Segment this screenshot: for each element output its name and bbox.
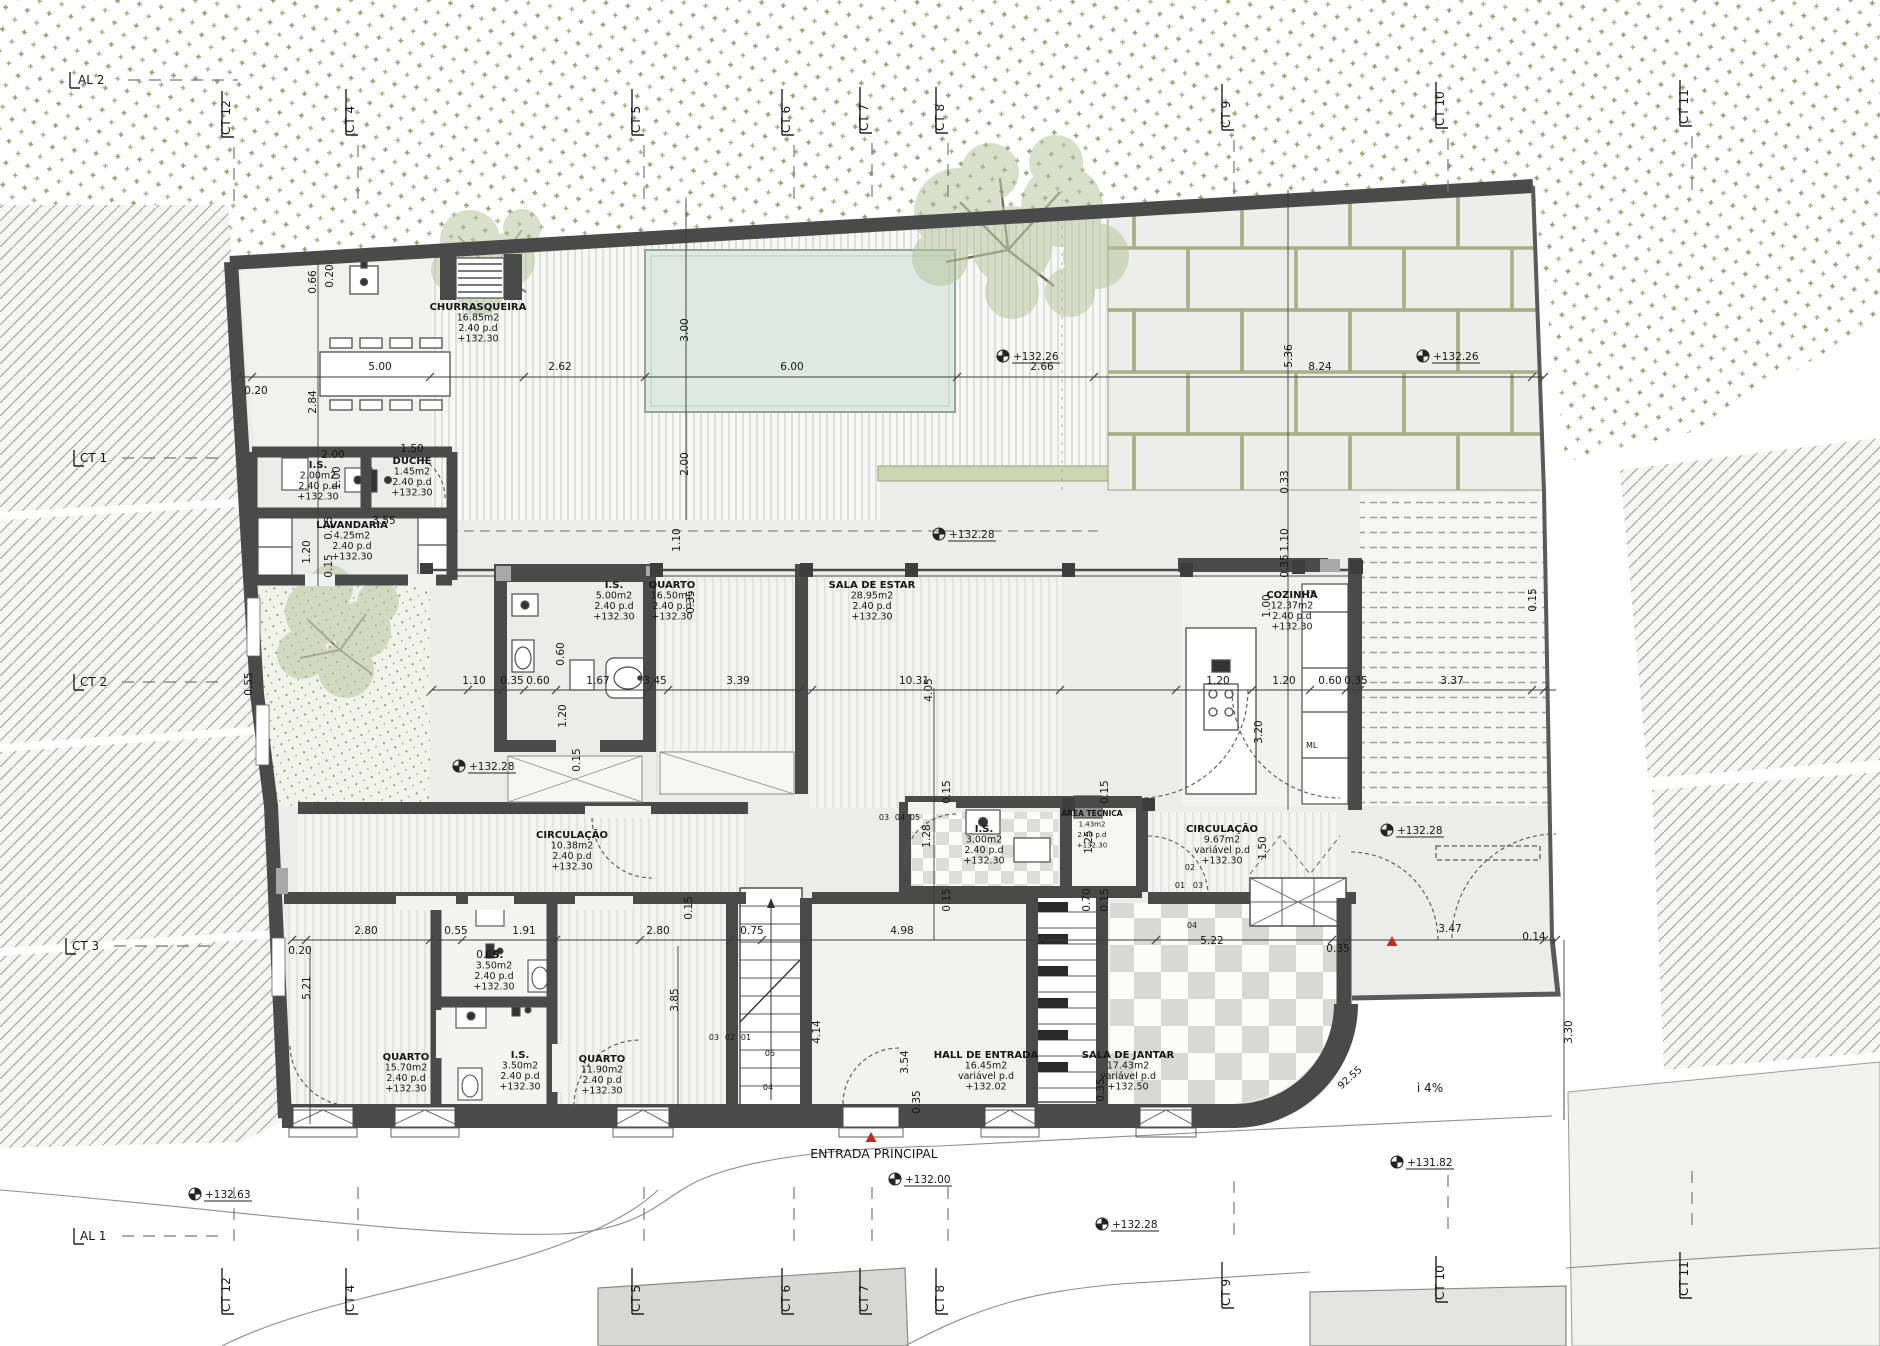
room-ceiling-height: 2.40 p.d	[594, 601, 633, 612]
room-name: CIRCULAÇÃO	[1186, 822, 1258, 835]
dim-label: 0.60	[555, 642, 567, 665]
annotation: FR	[1306, 589, 1317, 598]
annotation: 92.55	[1336, 1064, 1365, 1091]
dim-label: 0.55	[444, 925, 467, 937]
room-area: 11.90m2	[581, 1065, 624, 1076]
dim-label: 0.66	[307, 270, 319, 294]
room-name: CHURRASQUEIRA	[430, 302, 527, 313]
paver-terrace	[1108, 188, 1543, 490]
dim-label: 0.15	[476, 949, 499, 961]
dim-label: 6.00	[780, 361, 803, 373]
dim-label: 0.15	[1527, 588, 1539, 611]
dim-label: 2.80	[354, 925, 377, 937]
room-area: 16.85m2	[457, 313, 500, 324]
room-ceiling-height: variável p.d	[1100, 1071, 1156, 1082]
dim-label: 1.00	[1261, 594, 1273, 617]
room-area: 3.00m2	[966, 835, 1002, 846]
dim-label: 5.00	[368, 361, 391, 373]
room-name: I.S.	[511, 1050, 530, 1061]
dim-label: 0.20	[244, 385, 267, 397]
dim-label: 1.20	[1272, 675, 1295, 687]
site-plan-svg: CHURRASQUEIRA16.85m22.40 p.d+132.30I.S.2…	[0, 0, 1880, 1346]
dim-label: 0.15	[571, 748, 583, 771]
level-value: +131.82	[1407, 1157, 1453, 1169]
room-name: I.S.	[605, 580, 624, 591]
dim-label: 2.00	[679, 452, 691, 475]
dim-label: 2.84	[307, 390, 319, 414]
room-ceiling-height: 2.40 p.d	[582, 1075, 621, 1086]
dim-label: 0.15	[941, 888, 953, 911]
dim-label: 0.70	[1081, 888, 1093, 911]
grid-label: CT 12	[219, 100, 233, 135]
floorplan-stage: CHURRASQUEIRA16.85m22.40 p.d+132.30I.S.2…	[0, 0, 1880, 1346]
stair-number: 02	[725, 1033, 735, 1042]
dim-label: 3.39	[726, 675, 749, 687]
room-ceiling-height: 2.40 p.d	[852, 601, 891, 612]
dim-label: 4.14	[811, 1020, 823, 1044]
dim-label: 1.10	[1279, 528, 1291, 551]
dim-label: 3.37	[1440, 675, 1463, 687]
dim-label: 8.24	[1308, 361, 1332, 373]
grid-label: CT 11	[1677, 89, 1691, 124]
grid-label: CT 10	[1433, 1265, 1447, 1300]
room-ceiling-height: 2.40 p.d	[1272, 611, 1311, 622]
neighbor-hatch-right-upper	[1620, 438, 1880, 778]
dim-label: 4.98	[890, 925, 913, 937]
stair-number: 04	[763, 1083, 773, 1092]
level-marker: +132.26	[1417, 350, 1480, 363]
room-ceiling-height: 2.40 p.d	[552, 851, 591, 862]
room-level: +132.30	[385, 1084, 426, 1095]
dim-label: 1.20	[1206, 675, 1229, 687]
stair-number: 03	[879, 813, 889, 822]
level-value: +132.63	[205, 1189, 251, 1201]
dim-label: 0.60	[1318, 675, 1341, 687]
grid-label: CT 12	[219, 1277, 233, 1312]
annotation: ML	[1306, 741, 1318, 750]
stair-number: 04	[1187, 921, 1197, 930]
piano-stair	[1036, 896, 1102, 1102]
level-marker: +131.82	[1391, 1156, 1454, 1169]
dim-label: 3.45	[643, 675, 666, 687]
stair-number: 04	[895, 813, 905, 822]
room-area: 17.43m2	[1107, 1061, 1150, 1072]
grid-label: CT 4	[343, 1285, 357, 1312]
dim-label: 1.67	[586, 675, 609, 687]
room-area: 1.45m2	[394, 467, 430, 478]
room-level: +132.30	[1271, 622, 1312, 633]
room-name: QUARTO	[649, 580, 696, 591]
room-area: 12.37m2	[1271, 601, 1314, 612]
dim-label: 0.35	[1326, 943, 1349, 955]
dim-label: 1.00	[331, 466, 343, 489]
grid-label: CT 9	[1219, 101, 1233, 128]
room-name: HALL DE ENTRADA	[934, 1050, 1039, 1061]
planter-strip	[878, 466, 1108, 481]
room-level: +132.30	[963, 856, 1004, 867]
level-marker: +132.28	[1096, 1218, 1159, 1231]
room-area: 16.45m2	[965, 1061, 1008, 1072]
dim-label: 0.35	[1279, 554, 1291, 577]
grid-label: AL 1	[80, 1229, 106, 1243]
dim-label: 1.50	[1257, 836, 1269, 859]
level-value: +132.28	[949, 529, 995, 541]
room-level: +132.30	[851, 612, 892, 623]
room-ceiling-height: variável p.d	[958, 1071, 1014, 1082]
dim-label: 0.35	[1344, 675, 1367, 687]
room-name: DUCHE	[393, 456, 432, 467]
pool	[645, 250, 955, 412]
room-ceiling-height: 2.40 p.d	[964, 845, 1003, 856]
grid-label: CT 5	[629, 106, 643, 133]
level-marker: +132.00	[889, 1173, 952, 1186]
grill	[440, 254, 522, 300]
room-name: I.S.	[975, 824, 994, 835]
level-marker: +132.28	[1381, 824, 1444, 837]
room-level: +132.30	[1201, 856, 1242, 867]
stair-number: 01	[1175, 881, 1185, 890]
dim-label: 0.15	[683, 896, 695, 919]
sala-estar-floor	[810, 578, 1062, 808]
terrain-right	[1568, 1062, 1880, 1346]
dim-label: 0.15	[323, 516, 335, 539]
dim-label: 0.15	[1099, 888, 1111, 911]
grid-label: CT 4	[343, 106, 357, 133]
level-marker: +132.28	[933, 528, 996, 541]
dim-label: 0.55	[243, 672, 255, 695]
dim-label: 3.55	[372, 515, 395, 527]
dim-label: 0.20	[324, 264, 336, 287]
dim-label: 1.28	[921, 824, 933, 847]
dim-label: 2.62	[548, 361, 571, 373]
level-value: +132.28	[469, 761, 515, 773]
grid-label: CT 7	[857, 104, 871, 131]
dim-label: 3.30	[1563, 1020, 1575, 1043]
dim-label: 3.47	[1438, 923, 1461, 935]
level-value: +132.26	[1433, 351, 1479, 363]
grid-label: CT 1	[80, 451, 107, 465]
stair-number: 01	[741, 1033, 751, 1042]
room-level: +132.30	[581, 1086, 622, 1097]
dim-label: 0.14	[1522, 931, 1546, 943]
room-level: +132.50	[1107, 1082, 1148, 1093]
room-area: 5.00m2	[596, 591, 632, 602]
room-area: 10.38m2	[551, 841, 594, 852]
level-marker: +132.63	[189, 1188, 252, 1201]
dim-label: 2.00	[321, 449, 344, 461]
room-level: +132.30	[297, 492, 338, 503]
room-area: 3.50m2	[476, 961, 512, 972]
level-value: +132.28	[1397, 825, 1443, 837]
grid-label: CT 8	[933, 1285, 947, 1312]
room-level: +132.02	[965, 1082, 1006, 1093]
room-area: 3.50m2	[502, 1061, 538, 1072]
stair-number: 05	[910, 813, 920, 822]
room-name: SALA DE ESTAR	[829, 580, 916, 591]
dim-label: 1.91	[512, 925, 535, 937]
dim-label: 0.20	[288, 945, 311, 957]
dim-label: 3.54	[899, 1050, 911, 1074]
room-name: QUARTO	[579, 1054, 626, 1065]
dim-label: 0.15	[941, 780, 953, 803]
dim-label: 1.10	[671, 528, 683, 551]
stair-number: 03	[1193, 881, 1203, 890]
grid-label: AL 2	[78, 73, 104, 87]
room-ceiling-height: 2.40 p.d	[332, 541, 371, 552]
dim-label: 0.35	[1095, 1078, 1107, 1101]
grid-label: CT 3	[72, 939, 99, 953]
room-level: +132.30	[593, 612, 634, 623]
dim-label: 1.25	[1083, 830, 1095, 853]
neighbor-hatch-right-lower	[1652, 772, 1880, 1070]
dim-label: 0.35	[911, 1090, 923, 1113]
room-name: I.S.	[309, 460, 328, 471]
room-level: +132.30	[391, 488, 432, 499]
room-name: QUARTO	[383, 1052, 430, 1063]
room-level: +132.30	[499, 1082, 540, 1093]
room-level: +132.30	[331, 552, 372, 563]
dim-label: 0.33	[1279, 470, 1291, 493]
room-ceiling-height: 2.40 p.d	[458, 323, 497, 334]
stair-number: 03	[709, 1033, 719, 1042]
dim-label: 4.05	[923, 678, 935, 701]
stair-number: 05	[765, 1049, 775, 1058]
room-ceiling-height: 2.40 p.d	[474, 971, 513, 982]
dim-label: 5.22	[1200, 935, 1223, 947]
dim-label: 2.80	[646, 925, 669, 937]
dim-label: 5.21	[301, 976, 313, 999]
stair-number: 02	[1185, 863, 1195, 872]
room-level: +132.30	[473, 982, 514, 993]
grid-label: CT 10	[1433, 91, 1447, 126]
room-name: CIRCULAÇÃO	[536, 828, 608, 841]
room-ceiling-height: 2.40 p.d	[500, 1071, 539, 1082]
level-marker: +132.28	[453, 760, 516, 773]
grid-label: CT 6	[779, 106, 793, 133]
dim-label: 0.15	[1099, 780, 1111, 803]
grid-label: CT 8	[933, 104, 947, 131]
level-marker: +132.26	[997, 350, 1060, 363]
dim-label: 1.50	[400, 443, 423, 455]
annotation: i 4%	[1417, 1081, 1443, 1095]
main-stair	[740, 888, 802, 1108]
level-value: +132.28	[1112, 1219, 1158, 1231]
level-value: +132.26	[1013, 351, 1059, 363]
grid-label: CT 9	[1219, 1279, 1233, 1306]
room-level: +132.30	[457, 334, 498, 345]
dim-label: 0.15	[323, 554, 335, 577]
room-ceiling-height: 2.40 p.d	[386, 1073, 425, 1084]
ramp-side-floor	[1360, 492, 1550, 806]
room-name: SALA DE JANTAR	[1082, 1050, 1175, 1061]
dim-label: 3.00	[679, 318, 691, 341]
dim-label: 0.35	[685, 590, 697, 613]
room-area: 9.67m2	[1204, 835, 1240, 846]
dim-label: 1.10	[462, 675, 485, 687]
grid-label: CT 2	[80, 675, 107, 689]
dim-label: 1.20	[301, 540, 313, 563]
room-area: 4.25m2	[334, 531, 370, 542]
room-area: 28.95m2	[851, 591, 894, 602]
room-ceiling-height: variável p.d	[1194, 845, 1250, 856]
room-ceiling-height: 2.40 p.d	[392, 477, 431, 488]
grid-label: CT 6	[779, 1285, 793, 1312]
grid-label: CT 11	[1677, 1261, 1691, 1296]
dim-label: 0.75	[740, 925, 763, 937]
dim-label: 1.20	[557, 704, 569, 727]
room-area: 15.70m2	[385, 1063, 428, 1074]
room-name: AREA TECNICA	[1061, 809, 1122, 818]
room-area: 1.43m2	[1079, 821, 1106, 829]
grid-label: CT 5	[629, 1285, 643, 1312]
dim-label: 5.36	[1283, 344, 1295, 368]
level-value: +132.00	[905, 1174, 951, 1186]
dim-label: 3.20	[1253, 720, 1265, 743]
room-level: +132.30	[551, 862, 592, 873]
dim-label: 0.60	[526, 675, 549, 687]
dim-label: 3.85	[669, 988, 681, 1011]
dim-label: 0.35	[500, 675, 523, 687]
annotation: ENTRADA PRINCIPAL	[810, 1146, 938, 1161]
corridor-floor	[298, 815, 746, 897]
grid-label: CT 7	[857, 1285, 871, 1312]
